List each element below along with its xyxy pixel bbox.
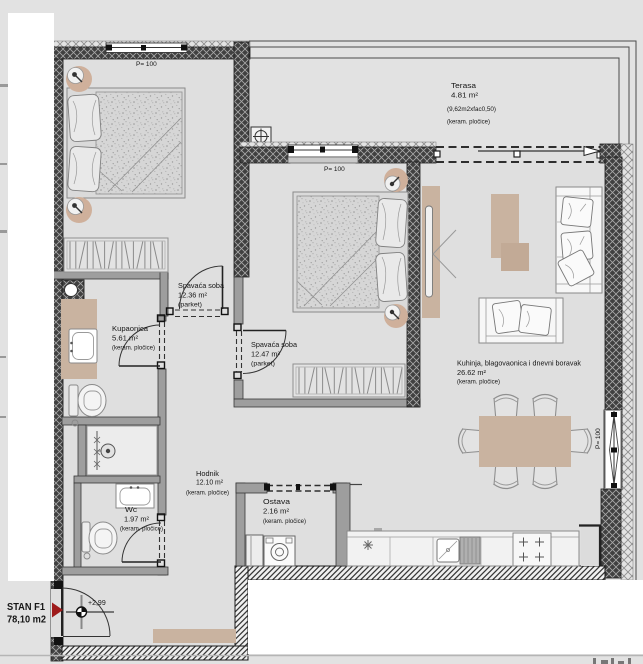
svg-text:12.36 m²: 12.36 m²	[178, 291, 208, 300]
svg-text:12.10 m²: 12.10 m²	[196, 478, 223, 487]
svg-text:STAN F1: STAN F1	[7, 602, 45, 613]
svg-text:Spavaća soba: Spavaća soba	[178, 281, 225, 290]
svg-text:P= 100: P= 100	[136, 61, 157, 68]
svg-text:2.16 m²: 2.16 m²	[263, 507, 290, 516]
svg-text:(keram. pločice): (keram. pločice)	[186, 490, 229, 497]
svg-text:Terasa: Terasa	[451, 81, 477, 90]
svg-text:(keram. pločice): (keram. pločice)	[112, 345, 155, 352]
svg-text:4.81 m²: 4.81 m²	[451, 91, 479, 100]
svg-text:(parket): (parket)	[251, 361, 275, 368]
svg-text:(9,62m2xfac0,50): (9,62m2xfac0,50)	[447, 106, 496, 113]
svg-text:Ostava: Ostava	[263, 497, 291, 506]
svg-text:Kuhinja, blagovaonica i dnevni: Kuhinja, blagovaonica i dnevni boravak	[457, 359, 581, 368]
svg-text:P= 100: P= 100	[595, 428, 602, 449]
svg-text:Wc: Wc	[125, 505, 137, 514]
svg-text:P= 100: P= 100	[324, 166, 345, 173]
svg-text:(keram. pločice): (keram. pločice)	[447, 119, 490, 126]
svg-text:12.47 m²: 12.47 m²	[251, 350, 281, 359]
svg-text:1.97 m²: 1.97 m²	[124, 515, 150, 524]
svg-text:+2,99: +2,99	[88, 600, 106, 607]
svg-text:26.62 m²: 26.62 m²	[457, 368, 487, 377]
svg-text:(parket): (parket)	[178, 302, 202, 309]
svg-text:(keram. pločice): (keram. pločice)	[120, 526, 163, 533]
svg-text:Kupaonica: Kupaonica	[112, 324, 149, 333]
svg-text:5.61 m²: 5.61 m²	[112, 334, 139, 343]
svg-text:78,10 m2: 78,10 m2	[7, 615, 46, 626]
svg-text:Spavaća soba: Spavaća soba	[251, 340, 298, 349]
svg-text:(keram. pločice): (keram. pločice)	[457, 379, 500, 386]
svg-text:(keram. pločice): (keram. pločice)	[263, 518, 306, 525]
